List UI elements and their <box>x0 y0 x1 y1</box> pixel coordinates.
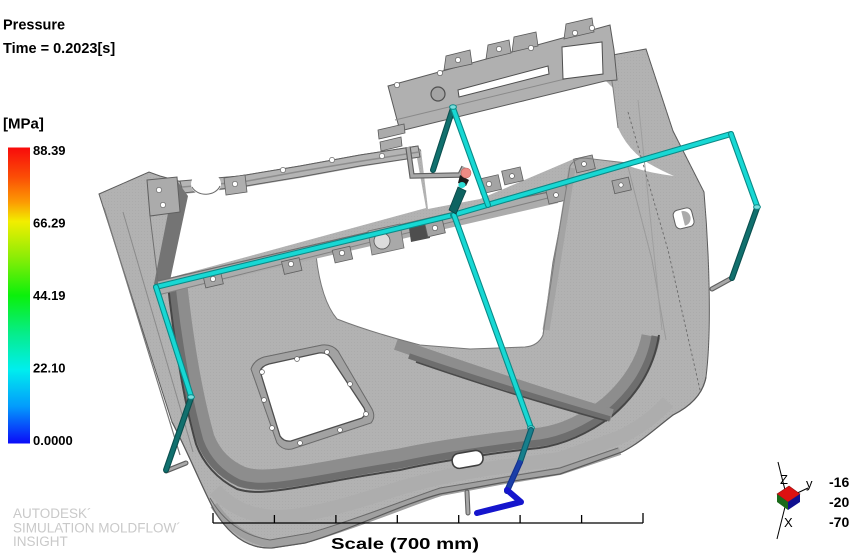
svg-text:Scale (700 mm): Scale (700 mm) <box>331 536 479 553</box>
svg-text:-70: -70 <box>829 514 849 530</box>
svg-text:y: y <box>806 476 813 491</box>
svg-text:Pressure: Pressure <box>3 18 65 34</box>
svg-text:INSIGHT: INSIGHT <box>13 534 68 549</box>
svg-text:Z: Z <box>780 472 788 487</box>
svg-text:AUTODESK´: AUTODESK´ <box>13 506 92 521</box>
svg-text:Time = 0.2023[s]: Time = 0.2023[s] <box>3 41 115 57</box>
svg-text:0.0000: 0.0000 <box>33 433 73 448</box>
svg-text:44.19: 44.19 <box>33 288 66 303</box>
svg-text:-16: -16 <box>829 474 849 490</box>
svg-text:22.10: 22.10 <box>33 361 66 376</box>
svg-text:[MPa]: [MPa] <box>3 116 44 133</box>
svg-text:66.29: 66.29 <box>33 216 66 231</box>
svg-text:-20: -20 <box>829 494 849 510</box>
svg-text:88.39: 88.39 <box>33 143 66 158</box>
svg-text:X: X <box>784 515 793 530</box>
